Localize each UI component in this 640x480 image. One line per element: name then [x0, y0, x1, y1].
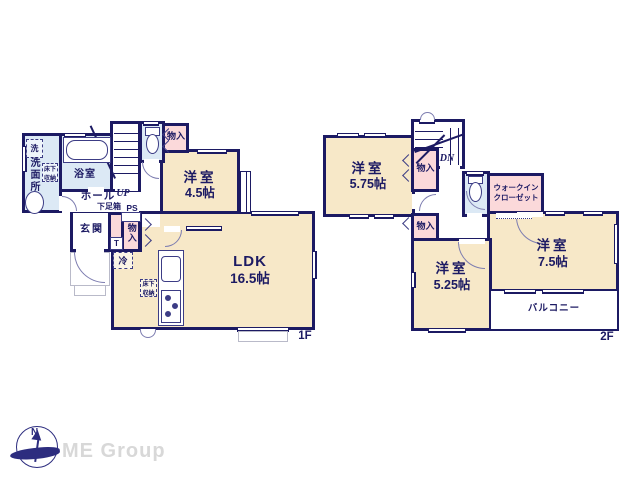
label-entrance: 玄関	[76, 224, 108, 236]
stove-burner	[165, 295, 171, 301]
label-western-4_5-name: 洋室	[172, 170, 228, 186]
label-ldk-size: 16.5帖	[212, 271, 288, 287]
terrace-step	[238, 331, 288, 342]
window-glyph	[614, 224, 619, 264]
kitchen-sink	[161, 256, 181, 282]
label-pipe-space: PS	[124, 203, 140, 213]
fridge-space: 冷	[113, 252, 133, 269]
label-shoe-cabinet: 下足箱	[94, 202, 124, 212]
label-washroom: 洗面所	[27, 157, 39, 193]
tile-box: T	[110, 237, 123, 250]
window-glyph	[251, 211, 299, 216]
window-glyph	[349, 214, 369, 219]
window-glyph	[186, 226, 222, 231]
entrance-step	[74, 285, 106, 296]
label-stairs-up: UP	[110, 188, 136, 200]
label-western-7_5-name: 洋室	[525, 238, 581, 254]
door-opening	[412, 194, 418, 209]
label-balcony: バルコニー	[519, 303, 589, 314]
label-storage-upper-2f: 物入	[413, 163, 438, 174]
label-western-5_25-name: 洋室	[424, 261, 480, 277]
window-glyph	[583, 211, 603, 216]
label-bath: 浴室	[70, 169, 100, 181]
door-opening-entrance	[76, 247, 104, 253]
window-glyph	[312, 251, 317, 279]
fridge-label: 冷	[118, 254, 127, 267]
door-arc-toilet-1f	[142, 162, 159, 179]
floorplan-canvas: 洗 床下収納 冷 床下収納 洗面所 浴室 ホール UP 下足箱 PS 玄関 T …	[0, 0, 640, 480]
logo-text: ME Group	[62, 440, 166, 463]
window-glyph	[411, 272, 416, 288]
window-glyph	[542, 289, 584, 294]
label-western-7_5-size: 7.5帖	[529, 255, 577, 270]
compass: N	[14, 424, 62, 472]
washer-label: 洗	[31, 143, 39, 154]
label-western-5_75-name: 洋室	[340, 161, 396, 177]
toilet-bowl	[146, 134, 159, 154]
bathtub-inner	[66, 140, 108, 160]
bay-window	[240, 171, 251, 213]
washbasin	[25, 191, 44, 214]
window-glyph	[545, 211, 565, 216]
pipe-space-box	[121, 212, 141, 222]
washer-space: 洗	[26, 139, 43, 158]
window-glyph	[197, 149, 227, 154]
window-glyph	[504, 289, 536, 294]
label-storage-lower-2f: 物入	[413, 221, 438, 232]
stairs-steps	[114, 126, 138, 178]
label-storage-side-1f: 物入	[126, 223, 137, 243]
label-ldk-name: LDK	[218, 253, 282, 271]
label-western-5_75-size: 5.75帖	[336, 177, 400, 192]
underfloor-label: 床下収納	[43, 164, 57, 182]
label-western-4_5-size: 4.5帖	[172, 186, 228, 201]
stairs-opening	[440, 165, 460, 170]
door-arc-western-5_75	[419, 194, 436, 211]
label-western-5_25-size: 5.25帖	[420, 278, 484, 293]
door-arc-kitchen-back	[140, 329, 156, 338]
underfloor-storage-ldk: 床下収納	[140, 279, 157, 297]
label-floor-2f: 2F	[596, 331, 618, 345]
label-wic-line1: ウォークイン	[492, 183, 540, 192]
window-glyph	[337, 133, 359, 138]
window-glyph	[364, 133, 386, 138]
window-glyph	[428, 328, 466, 333]
kitchen-stove	[161, 290, 181, 323]
wic-opening-dotted	[496, 213, 532, 219]
window-glyph	[143, 121, 159, 126]
label-wic-line2: クローゼット	[492, 193, 540, 202]
label-tile: T	[114, 239, 119, 249]
label-storage-upper-1f: 物入	[164, 131, 188, 142]
underfloor-storage-washroom: 床下収納	[42, 163, 58, 182]
window-arc-stairs	[420, 112, 435, 120]
underfloor-label: 床下収納	[141, 279, 156, 297]
door-arc-washroom	[62, 196, 77, 211]
stove-burner	[172, 303, 178, 309]
stove-burner	[165, 311, 171, 317]
door-opening	[467, 213, 482, 218]
window-glyph	[374, 214, 394, 219]
label-floor-1f: 1F	[294, 330, 316, 344]
compass-arrowhead	[31, 429, 42, 440]
